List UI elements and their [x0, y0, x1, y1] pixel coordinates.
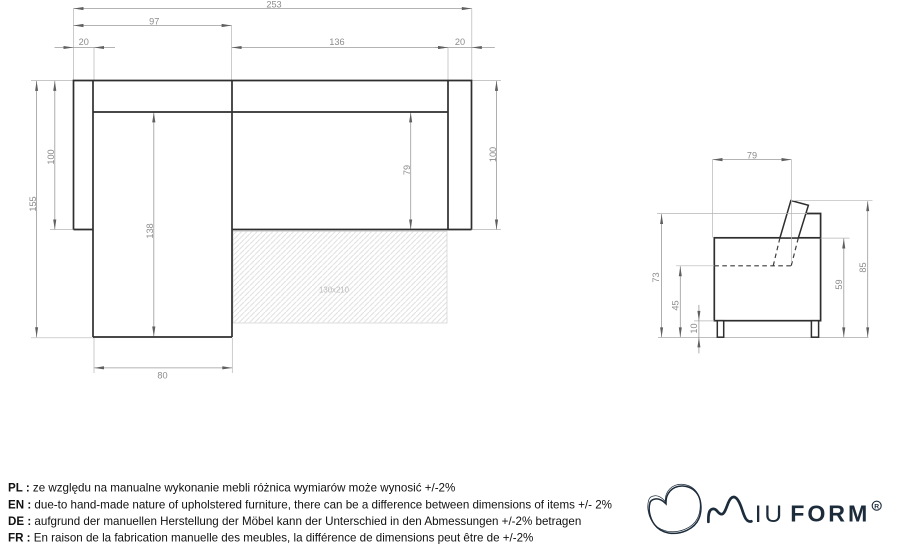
svg-text:DE : aufgrund der manuellen He: DE : aufgrund der manuellen Herstellung … [8, 515, 581, 528]
svg-text:80: 80 [157, 370, 167, 380]
svg-text:155: 155 [28, 196, 38, 211]
svg-text:79: 79 [747, 150, 757, 160]
svg-text:20: 20 [79, 37, 89, 47]
svg-text:73: 73 [651, 272, 661, 282]
svg-text:IU: IU [755, 501, 785, 528]
svg-text:R: R [874, 504, 879, 511]
svg-text:10: 10 [689, 323, 699, 333]
svg-text:EN : due-to hand-made nature o: EN : due-to hand-made nature of upholste… [8, 499, 612, 512]
svg-text:130x210: 130x210 [319, 286, 350, 295]
svg-text:FORM: FORM [790, 501, 870, 527]
svg-text:59: 59 [834, 279, 844, 289]
svg-text:PL : ze względu na manualne wy: PL : ze względu na manualne wykonanie me… [8, 481, 455, 494]
svg-text:253: 253 [266, 0, 281, 9]
svg-text:97: 97 [149, 16, 159, 26]
svg-text:FR : En raison de la fabricati: FR : En raison de la fabrication manuell… [8, 531, 533, 544]
svg-text:45: 45 [671, 300, 681, 310]
svg-text:136: 136 [329, 37, 344, 47]
svg-text:20: 20 [455, 37, 465, 47]
svg-text:138: 138 [145, 223, 155, 238]
svg-text:100: 100 [488, 147, 498, 162]
svg-text:100: 100 [46, 149, 56, 164]
svg-text:85: 85 [858, 262, 868, 272]
svg-text:79: 79 [402, 165, 412, 175]
